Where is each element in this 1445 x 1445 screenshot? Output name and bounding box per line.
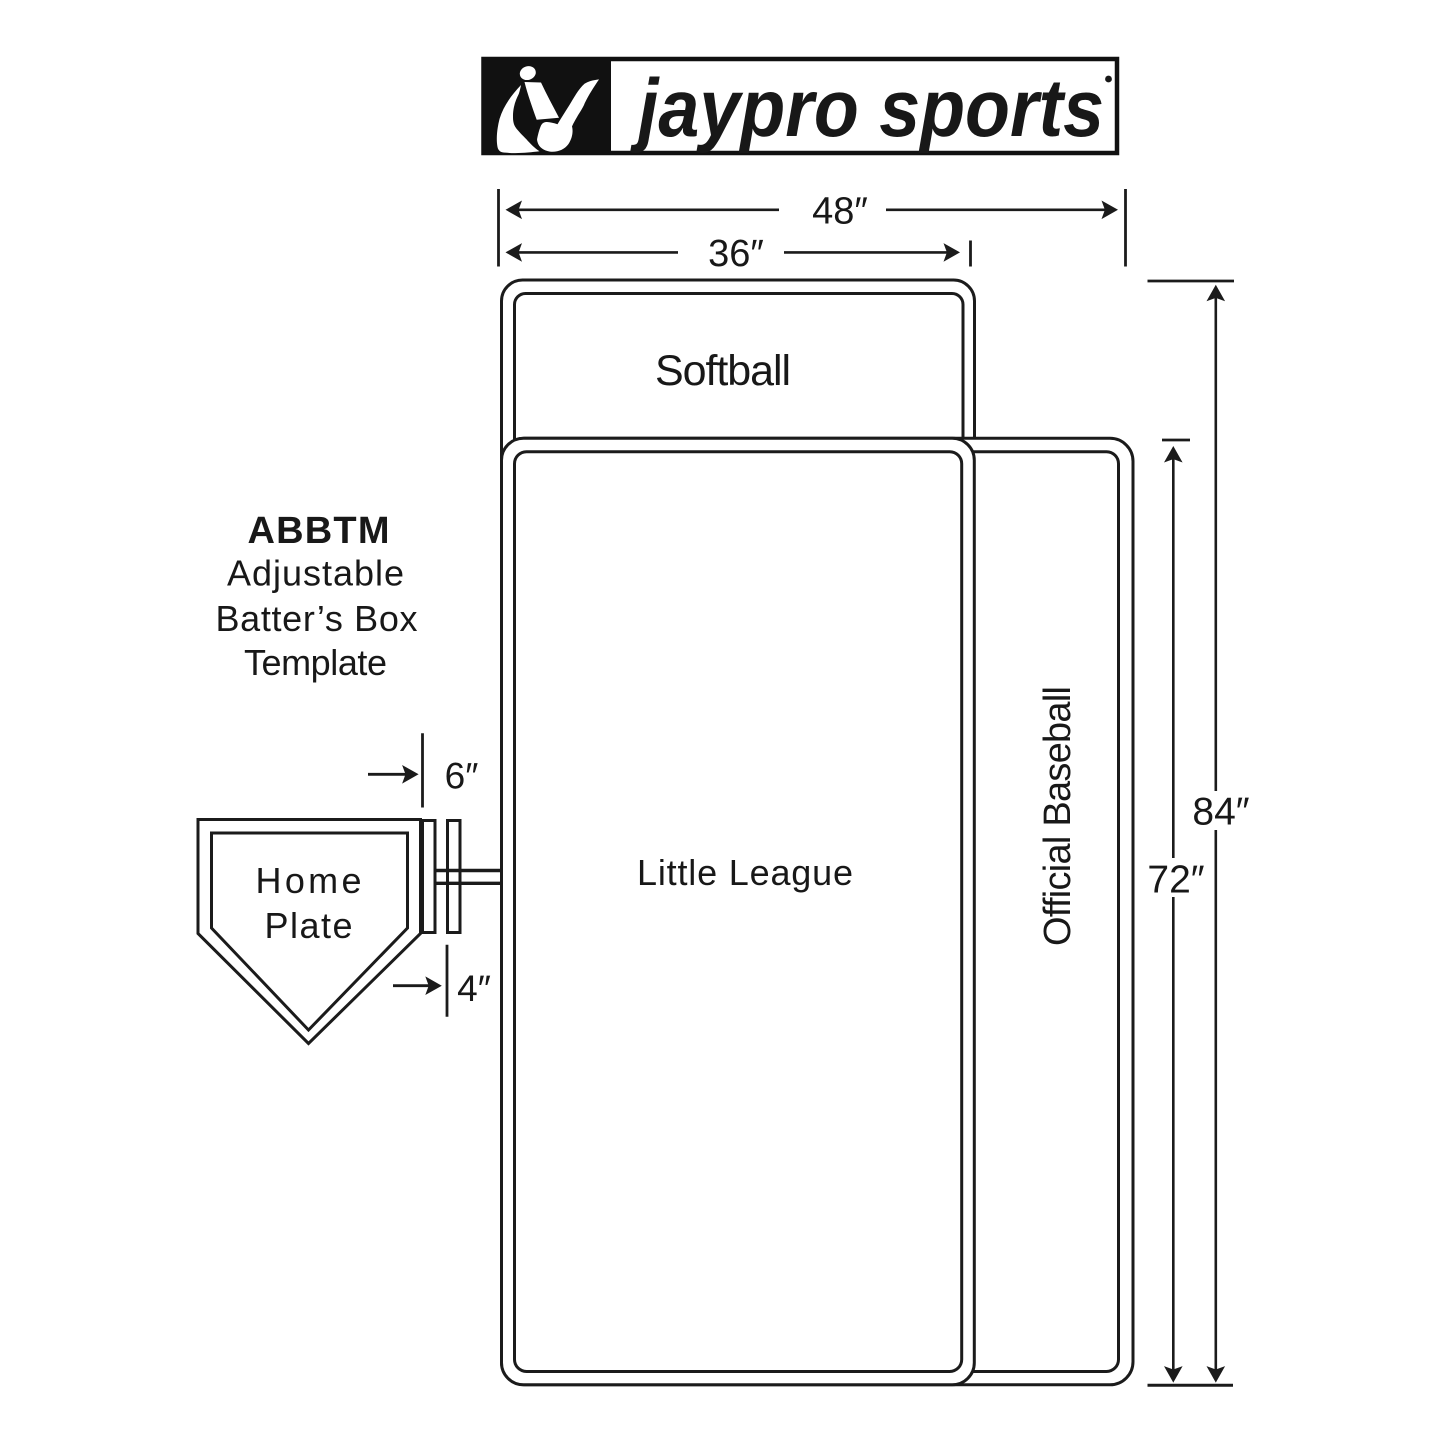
- svg-text:Batter’s Box: Batter’s Box: [216, 598, 418, 639]
- svg-text:72″: 72″: [1147, 859, 1204, 902]
- svg-text:Official Baseball: Official Baseball: [1037, 686, 1079, 946]
- svg-text:48″: 48″: [812, 191, 868, 233]
- svg-text:84″: 84″: [1192, 791, 1249, 834]
- svg-text:4″: 4″: [457, 968, 491, 1009]
- svg-text:ABBTM: ABBTM: [248, 510, 390, 552]
- svg-text:jaypro sports: jaypro sports: [630, 63, 1104, 154]
- svg-text:Little League: Little League: [637, 852, 853, 893]
- svg-text:6″: 6″: [445, 756, 479, 797]
- svg-text:Softball: Softball: [655, 347, 791, 395]
- svg-text:Adjustable: Adjustable: [227, 553, 404, 594]
- svg-text:Plate: Plate: [265, 905, 353, 946]
- svg-text:36″: 36″: [708, 233, 764, 275]
- svg-text:Home: Home: [256, 860, 362, 901]
- svg-text:Template: Template: [244, 642, 387, 683]
